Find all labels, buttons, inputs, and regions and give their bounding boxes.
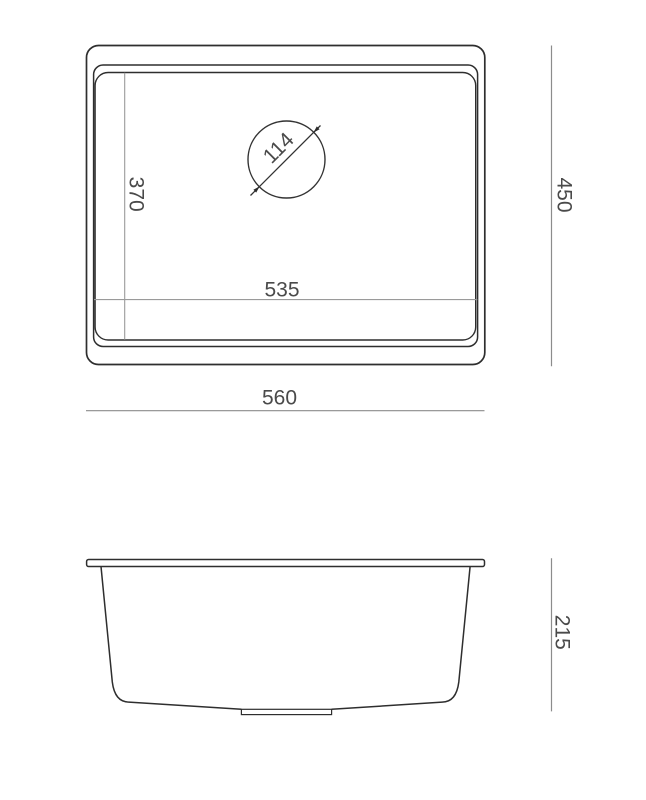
svg-text:215: 215 [550,615,573,650]
svg-text:535: 535 [264,278,299,301]
svg-text:450: 450 [552,177,575,212]
svg-text:370: 370 [124,177,147,212]
svg-text:560: 560 [262,387,297,410]
